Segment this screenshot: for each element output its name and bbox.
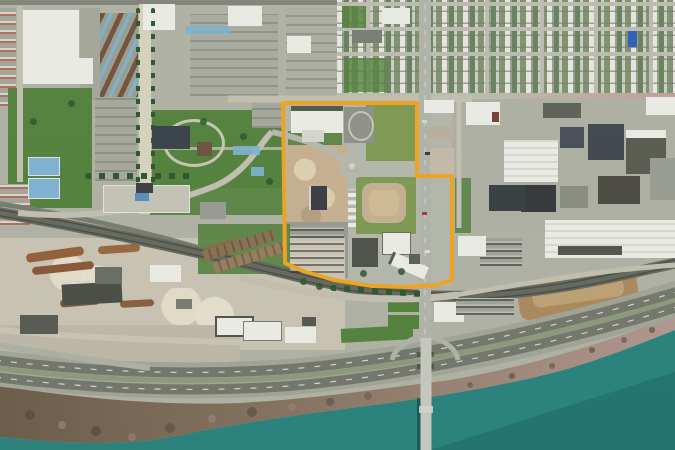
aerial-photo	[0, 0, 675, 450]
project-parcel-outline	[283, 103, 452, 287]
annotation-layer	[0, 0, 675, 450]
